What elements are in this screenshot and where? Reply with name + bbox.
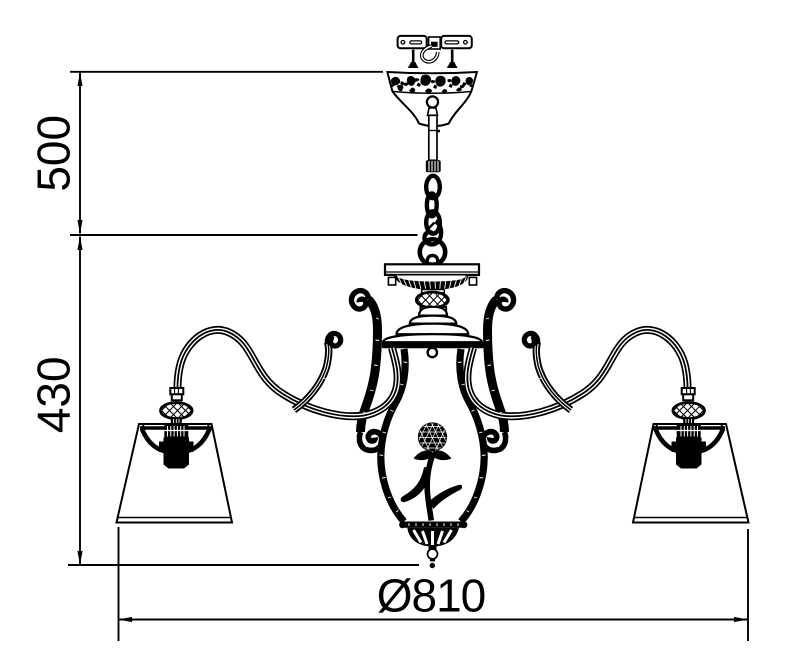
- svg-text:500: 500: [28, 115, 80, 192]
- svg-text:Ø810: Ø810: [377, 570, 486, 622]
- svg-text:430: 430: [28, 356, 80, 433]
